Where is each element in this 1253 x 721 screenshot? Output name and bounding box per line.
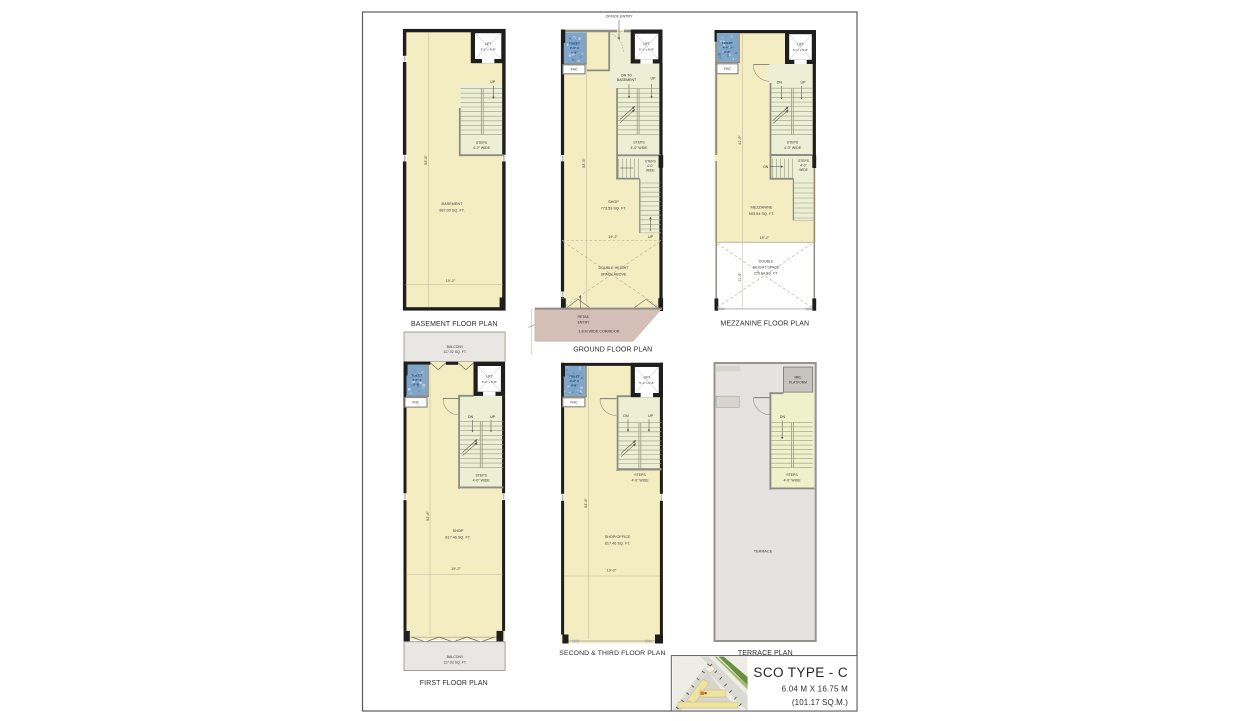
svg-text:4'-0" WIDE: 4'-0" WIDE — [784, 146, 802, 150]
svg-text:SPACE ABOVE: SPACE ABOVE — [601, 272, 627, 276]
svg-text:GROUND FLOOR PLAN: GROUND FLOOR PLAN — [573, 347, 652, 354]
svg-text:987.00 SQ. FT.: 987.00 SQ. FT. — [439, 209, 465, 213]
svg-text:DN: DN — [468, 415, 474, 419]
svg-text:FHC: FHC — [724, 67, 731, 71]
svg-text:5'-1" x 6'-8": 5'-1" x 6'-8" — [481, 48, 496, 52]
svg-text:STEPS: STEPS — [633, 141, 645, 145]
svg-text:BASEMENT FLOOR PLAN: BASEMENT FLOOR PLAN — [411, 321, 498, 328]
svg-text:BASEMENT: BASEMENT — [617, 78, 637, 82]
svg-text:DOUBLE HEIGHT: DOUBLE HEIGHT — [598, 266, 629, 270]
svg-text:TERRACE: TERRACE — [754, 549, 773, 554]
svg-text:WIDE: WIDE — [646, 168, 655, 172]
svg-text:19'-2": 19'-2" — [451, 567, 461, 571]
svg-text:117.02 SQ. FT.: 117.02 SQ. FT. — [443, 660, 467, 664]
svg-text:UP: UP — [648, 235, 654, 239]
svg-text:LIFT: LIFT — [797, 43, 804, 47]
svg-text:5'-1" x 6'-8": 5'-1" x 6'-8" — [482, 380, 497, 384]
svg-text:STEPS: STEPS — [476, 141, 488, 145]
svg-text:(101.17 SQ.M.): (101.17 SQ.M.) — [792, 698, 848, 707]
svg-text:UP: UP — [648, 414, 654, 418]
svg-text:5'-1" x 6'-8": 5'-1" x 6'-8" — [639, 48, 654, 52]
svg-text:LIFT: LIFT — [485, 42, 492, 46]
svg-text:4'-0" X: 4'-0" X — [570, 46, 579, 50]
svg-text:4'-0": 4'-0" — [800, 164, 807, 168]
svg-text:5'-1" x 6'-8": 5'-1" x 6'-8" — [639, 381, 654, 385]
svg-text:52'-6": 52'-6" — [426, 511, 430, 521]
svg-text:6'-8": 6'-8" — [571, 384, 578, 388]
svg-text:UP: UP — [490, 415, 496, 419]
svg-text:MEZZANINE FLOOR PLAN: MEZZANINE FLOOR PLAN — [720, 321, 809, 328]
svg-text:19'-2": 19'-2" — [446, 279, 456, 283]
svg-text:TOILET: TOILET — [569, 374, 580, 378]
svg-text:PLATFORM: PLATFORM — [789, 380, 807, 384]
svg-text:4'-0" WIDE: 4'-0" WIDE — [783, 479, 801, 483]
svg-text:DN: DN — [777, 80, 783, 84]
svg-text:UP: UP — [490, 80, 496, 84]
svg-text:5'-1" x 6'-8": 5'-1" x 6'-8" — [793, 48, 808, 52]
svg-text:STEPS: STEPS — [645, 159, 657, 163]
svg-text:817.46 SQ. FT.: 817.46 SQ. FT. — [445, 536, 471, 540]
svg-text:4'-0" WIDE: 4'-0" WIDE — [631, 479, 649, 483]
svg-text:SHOP: SHOP — [608, 200, 619, 204]
svg-text:225.94.SQ. FT.: 225.94.SQ. FT. — [754, 272, 778, 276]
svg-text:DN TO: DN TO — [621, 73, 632, 77]
svg-text:817.46 SQ. FT.: 817.46 SQ. FT. — [605, 542, 631, 546]
svg-text:DN: DN — [763, 165, 768, 169]
svg-text:TOILET: TOILET — [722, 41, 733, 45]
svg-text:6'-8": 6'-8" — [414, 383, 421, 387]
svg-text:6.04 M X 16.75 M: 6.04 M X 16.75 M — [782, 685, 848, 694]
svg-text:53'-6": 53'-6" — [582, 158, 586, 168]
svg-text:FIRST FLOOR PLAN: FIRST FLOOR PLAN — [420, 680, 488, 687]
svg-text:DOUBLE: DOUBLE — [759, 260, 774, 264]
svg-text:FHC: FHC — [413, 401, 420, 405]
svg-text:593.94 SQ. FT.: 593.94 SQ. FT. — [749, 212, 775, 216]
svg-text:41'-9": 41'-9" — [738, 135, 742, 145]
svg-text:BASEMENT: BASEMENT — [442, 202, 464, 206]
svg-text:MRL: MRL — [795, 375, 802, 379]
svg-text:FHC: FHC — [570, 401, 577, 405]
svg-text:6'-8": 6'-8" — [571, 51, 578, 55]
svg-text:11'-9": 11'-9" — [738, 272, 742, 282]
svg-text:4'-0": 4'-0" — [647, 164, 654, 168]
svg-text:4'-0" WIDE: 4'-0" WIDE — [473, 479, 491, 483]
svg-text:LIFT: LIFT — [486, 375, 493, 379]
svg-text:ENTRY: ENTRY — [578, 321, 590, 325]
svg-text:53'-6": 53'-6" — [584, 498, 588, 508]
svg-text:OFFICE ENTRY: OFFICE ENTRY — [606, 14, 634, 18]
svg-text:BALCONY: BALCONY — [447, 655, 464, 659]
svg-text:6'-8": 6'-8" — [724, 50, 731, 54]
svg-text:LIFT: LIFT — [643, 42, 650, 46]
svg-text:1.8 M WIDE CORRIDOR: 1.8 M WIDE CORRIDOR — [578, 329, 619, 333]
svg-text:MEZZANINE: MEZZANINE — [751, 206, 773, 210]
svg-text:DN: DN — [623, 414, 629, 418]
svg-text:WIDE: WIDE — [799, 168, 808, 172]
svg-text:TOILET: TOILET — [411, 374, 422, 378]
svg-text:STEPS: STEPS — [787, 141, 799, 145]
svg-text:4'-0" WIDE: 4'-0" WIDE — [630, 146, 648, 150]
svg-text:STEPS: STEPS — [786, 473, 798, 477]
svg-text:SECOND & THIRD FLOOR PLAN: SECOND & THIRD FLOOR PLAN — [559, 650, 665, 657]
svg-text:UP: UP — [651, 76, 657, 80]
svg-text:4'-0" WIDE: 4'-0" WIDE — [473, 146, 491, 150]
svg-text:SCO TYPE - C: SCO TYPE - C — [753, 665, 848, 680]
svg-text:SHOP/OFFICE: SHOP/OFFICE — [605, 535, 631, 539]
svg-text:773.59 SQ. FT.: 773.59 SQ. FT. — [601, 207, 627, 211]
svg-text:RETAIL: RETAIL — [578, 315, 590, 319]
svg-text:FHC: FHC — [571, 68, 578, 72]
svg-text:SHOP: SHOP — [453, 529, 464, 533]
svg-text:DN: DN — [780, 415, 786, 419]
svg-text:STEPS: STEPS — [798, 159, 810, 163]
svg-text:UP: UP — [801, 80, 807, 84]
svg-text:4'-0" X: 4'-0" X — [570, 379, 579, 383]
svg-text:BALCONY: BALCONY — [447, 345, 464, 349]
svg-text:4'-0" X: 4'-0" X — [723, 45, 732, 49]
svg-text:53'-6": 53'-6" — [424, 155, 428, 165]
svg-text:19'-2": 19'-2" — [608, 235, 618, 239]
svg-text:HEIGHT SPACE: HEIGHT SPACE — [753, 266, 780, 270]
svg-text:4'-0" X: 4'-0" X — [412, 378, 421, 382]
svg-text:117.02 SQ. FT.: 117.02 SQ. FT. — [443, 350, 467, 354]
svg-text:STEPS: STEPS — [634, 473, 646, 477]
svg-text:19'-2": 19'-2" — [760, 236, 770, 240]
svg-text:LIFT: LIFT — [644, 376, 651, 380]
svg-text:19'-2": 19'-2" — [607, 569, 617, 573]
svg-text:STEPS: STEPS — [475, 473, 487, 477]
svg-text:TOILET: TOILET — [569, 41, 580, 45]
